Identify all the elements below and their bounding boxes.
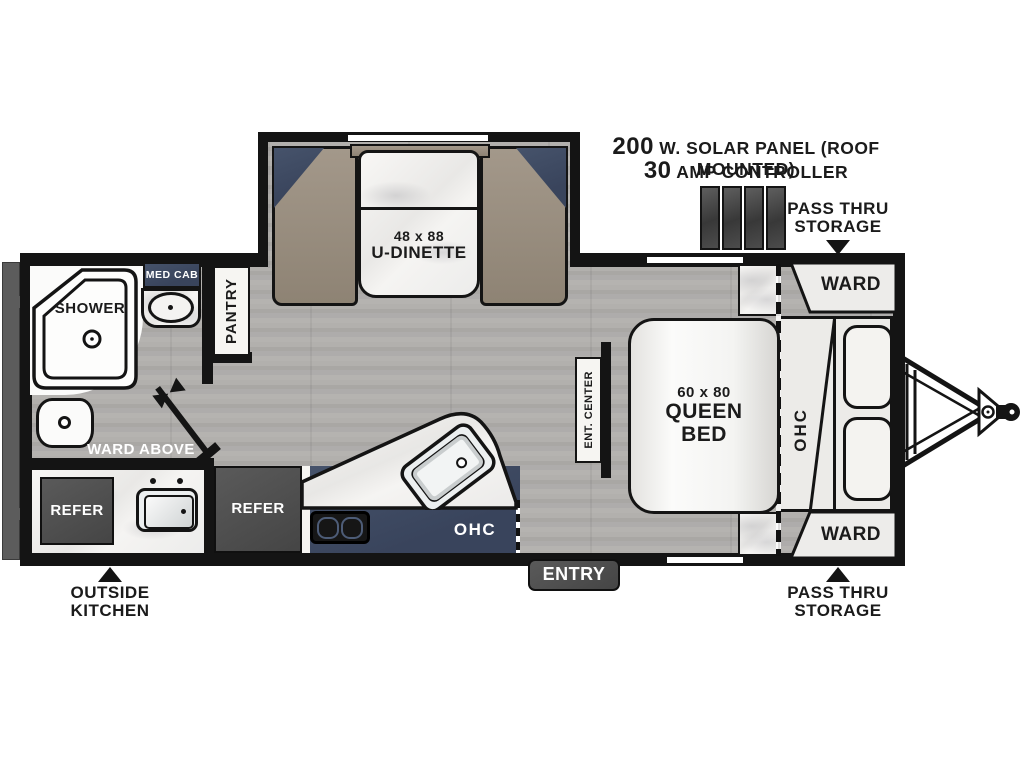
- outside-sink-drain: [181, 509, 186, 514]
- pass-thru-bottom-line1: PASS THRU: [787, 583, 888, 602]
- pillow: [843, 325, 893, 409]
- floorplan: 48 x 88 U-DINETTE SHOWER MED CAB PANTRY …: [0, 0, 1024, 768]
- window-slot: [348, 135, 488, 141]
- dinette-size: 48 x 88: [394, 229, 444, 244]
- ward-above-label: WARD ABOVE: [78, 442, 204, 458]
- window-slot: [647, 257, 743, 263]
- vanity-sink-drain: [168, 305, 173, 310]
- shower-label: SHOWER: [40, 301, 140, 317]
- bed-line1: QUEEN: [665, 401, 742, 424]
- pantry: PANTRY: [213, 266, 250, 356]
- bedroom-ohc-label: OHC: [792, 408, 810, 452]
- kitchen-ohc-label: OHC: [440, 521, 510, 539]
- queen-bed-label: 60 x 80 QUEEN BED: [628, 318, 780, 514]
- bed-size: 60 x 80: [677, 385, 731, 401]
- pillow: [843, 417, 893, 501]
- nightstand: [738, 512, 780, 556]
- tv-wall: [601, 342, 611, 478]
- nightstand: [738, 264, 780, 316]
- hitch-icon: [893, 328, 1024, 498]
- bed-line2: BED: [681, 424, 727, 447]
- controller-value: 30: [644, 157, 672, 184]
- bedroom-ohc: OHC: [778, 392, 824, 468]
- pantry-label: PANTRY: [223, 278, 240, 344]
- main-refer-label: REFER: [231, 501, 284, 517]
- dinette-slide-wall-left: [258, 132, 268, 267]
- kitchen-divider-wall: [204, 458, 214, 553]
- controller-callout: 30 AMP CONTROLLER: [566, 158, 926, 184]
- ent-center: ENT. CENTER: [575, 357, 602, 463]
- outside-kitchen-line1: OUTSIDE: [70, 583, 149, 602]
- stove-burners-icon: [310, 511, 370, 544]
- ward-top-label: WARD: [808, 272, 894, 298]
- outside-kitchen-wall: [28, 458, 208, 470]
- controller-text: AMP CONTROLLER: [676, 162, 848, 182]
- ward-top-text: WARD: [821, 275, 881, 296]
- outside-kitchen-callout: OUTSIDE KITCHEN: [58, 584, 162, 621]
- entry-door: ENTRY: [528, 559, 620, 591]
- outside-refer-label: REFER: [50, 503, 103, 519]
- dinette-name: U-DINETTE: [371, 244, 466, 262]
- pantry-wall: [202, 266, 213, 363]
- pass-thru-top-line1: PASS THRU: [787, 199, 888, 218]
- outside-sink-icon: [136, 488, 198, 532]
- shower-stall-icon: [30, 266, 145, 398]
- door-jamb: [202, 352, 213, 384]
- outside-kitchen-line2: KITCHEN: [70, 601, 149, 620]
- toilet-flush: [58, 416, 71, 429]
- dinette-label: 48 x 88 U-DINETTE: [350, 224, 488, 268]
- arrow-up-icon: [98, 567, 122, 582]
- outside-refer: REFER: [40, 477, 114, 545]
- pass-thru-bottom-callout: PASS THRU STORAGE: [786, 584, 890, 621]
- pass-thru-top-callout: PASS THRU STORAGE: [786, 200, 890, 237]
- pass-thru-top-line2: STORAGE: [794, 217, 881, 236]
- bed-head-divider: [833, 319, 836, 509]
- med-cab-label: MED CAB: [143, 262, 201, 288]
- pass-thru-bottom-line2: STORAGE: [794, 601, 881, 620]
- arrow-up-icon: [826, 567, 850, 582]
- window-slot: [667, 557, 743, 563]
- solar-value: 200: [612, 133, 654, 160]
- solar-panel-icon: [700, 186, 786, 250]
- main-refer: REFER: [214, 466, 302, 553]
- med-cab-text: MED CAB: [146, 269, 199, 281]
- ward-bottom-text: WARD: [821, 525, 881, 546]
- outside-sink-faucet: [150, 478, 156, 484]
- entry-label: ENTRY: [543, 565, 606, 584]
- kitchen-sink-counter: [298, 404, 524, 510]
- outside-sink-faucet: [177, 478, 183, 484]
- ward-bottom-label: WARD: [808, 522, 894, 548]
- ent-center-label: ENT. CENTER: [583, 371, 595, 449]
